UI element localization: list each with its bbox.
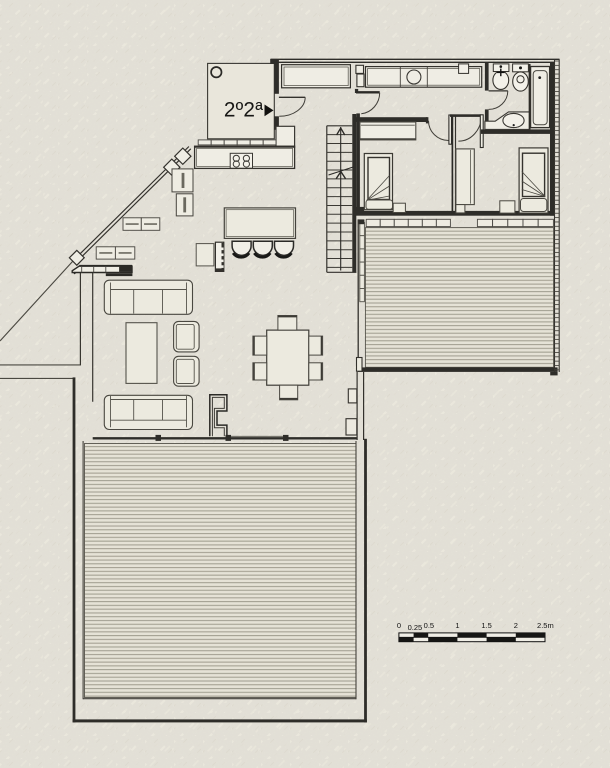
svg-text:2º2ª: 2º2ª: [224, 99, 263, 122]
svg-text:0: 0: [397, 621, 401, 630]
svg-text:2.5m: 2.5m: [537, 621, 554, 630]
svg-text:1: 1: [455, 621, 459, 630]
svg-text:0.25: 0.25: [408, 623, 423, 632]
svg-text:1.5: 1.5: [481, 621, 491, 630]
svg-text:0.5: 0.5: [424, 621, 434, 630]
svg-text:2: 2: [514, 621, 518, 630]
